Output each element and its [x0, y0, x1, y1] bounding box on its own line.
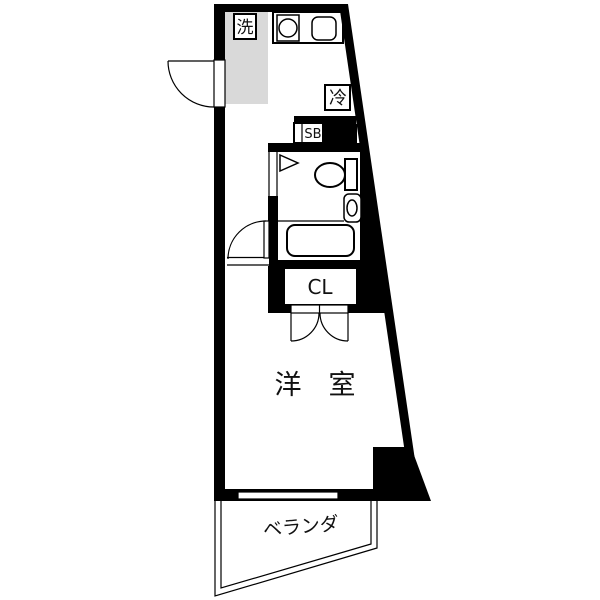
fridge-box: 冷 [325, 85, 350, 110]
closet-door-arc-right [320, 313, 348, 341]
floorplan-canvas: SB 洗 冷 CL ベランダ 洋 [0, 0, 600, 600]
wall-top [214, 4, 348, 12]
kitchen-sink-icon [312, 17, 336, 40]
balcony: ベランダ [215, 501, 377, 596]
hall-door-leaf [264, 221, 269, 258]
hall-door-arc [228, 221, 266, 259]
washer-label: 洗 [237, 18, 254, 38]
hall-room-door [227, 221, 269, 266]
balcony-outline-outer [215, 501, 377, 596]
bathtub-icon [287, 225, 354, 256]
wash-basin-bowl-icon [347, 200, 357, 216]
kitchen-counter [273, 12, 343, 43]
shoebox-label: SB [304, 127, 321, 142]
balcony-window [238, 492, 338, 499]
entrance-door-leaf [214, 60, 225, 107]
closet-door-arc-left [291, 313, 319, 341]
entrance-door-arc [168, 61, 214, 107]
pillar-wedge [373, 447, 431, 501]
fill-right-of-shoebox [322, 124, 357, 144]
entrance-door [168, 60, 225, 107]
western-room-label: 洋 室 [275, 370, 356, 401]
floorplan-drawing: SB 洗 冷 CL ベランダ 洋 [0, 0, 600, 600]
balcony-label: ベランダ [262, 513, 340, 542]
closet: CL [284, 268, 357, 341]
balcony-outline-inner [221, 501, 371, 588]
toilet-tank-icon [345, 159, 357, 190]
fridge-label: 冷 [329, 88, 347, 109]
washer-box: 洗 [234, 14, 256, 39]
shoe-box: SB [294, 123, 323, 143]
closet-label: CL [307, 275, 333, 299]
toilet-bowl-icon [315, 163, 345, 187]
wall-bathroom-top [268, 143, 362, 152]
